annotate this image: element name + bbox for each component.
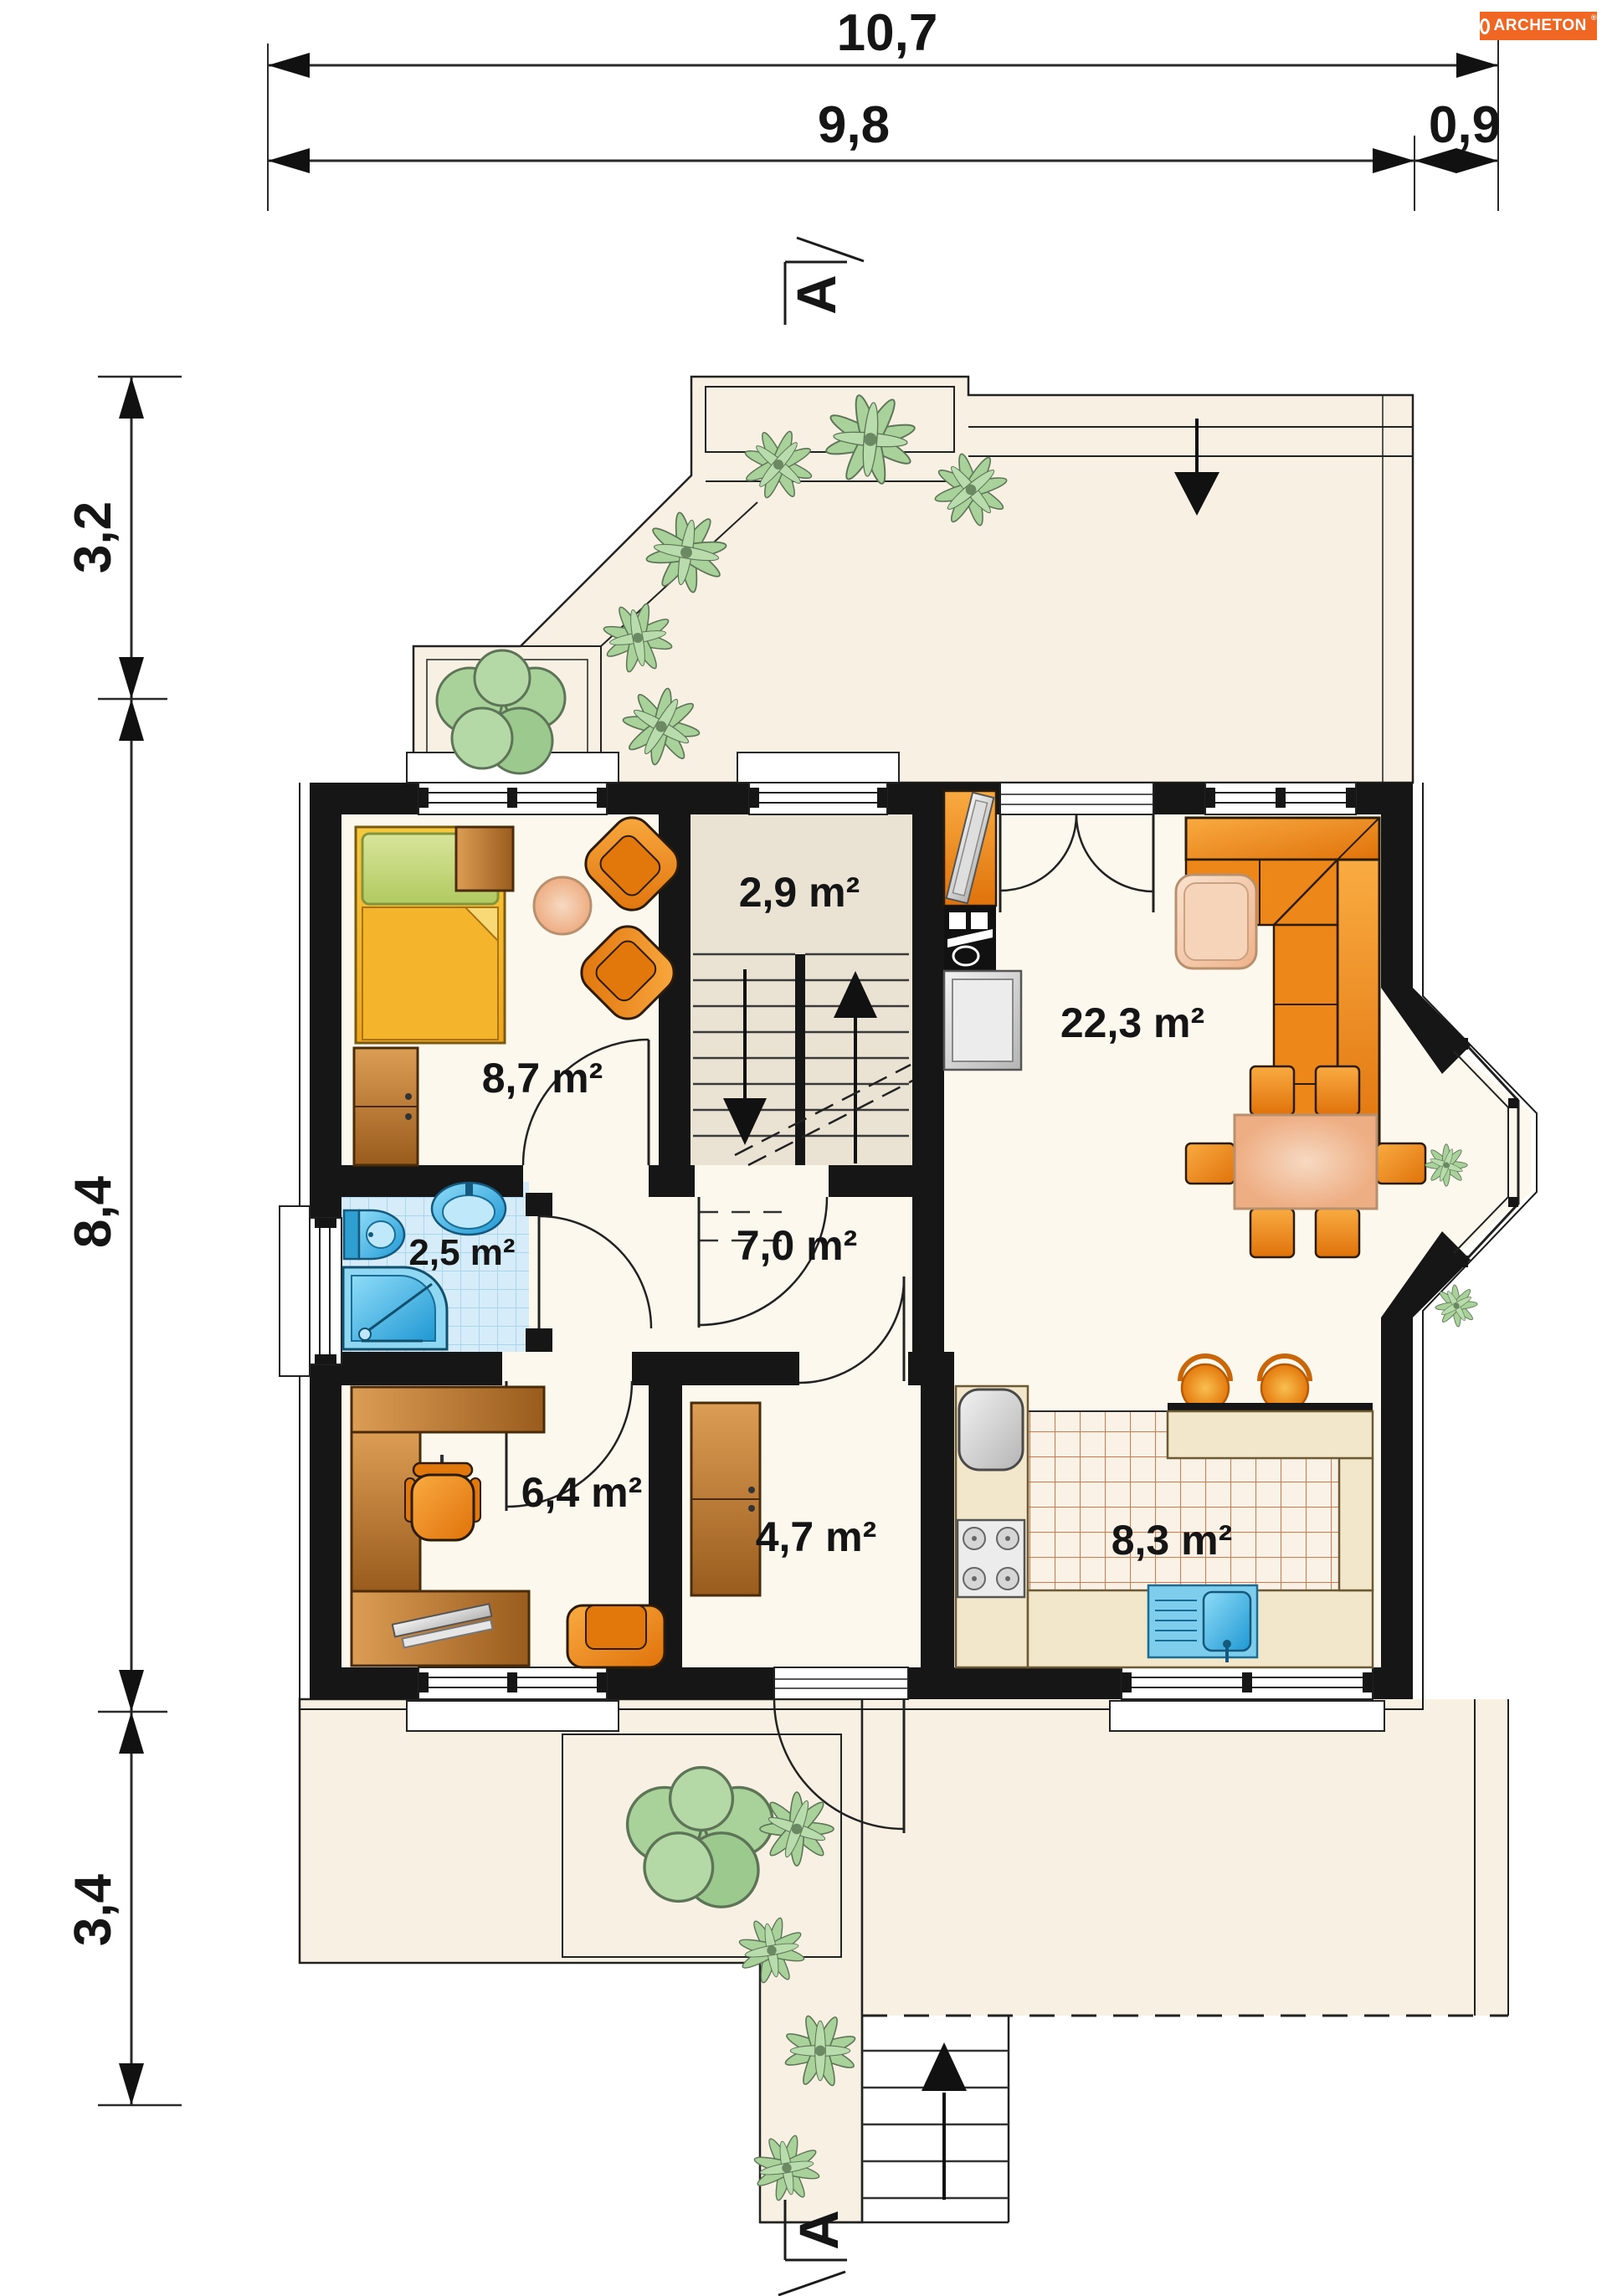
floor-plan-graphic	[0, 0, 1607, 2296]
fireplace	[944, 906, 996, 971]
section-marker-a-top: A	[787, 257, 845, 332]
section-marker-a-bottom: A	[789, 2192, 848, 2268]
armchair-u	[567, 1605, 665, 1667]
registered-mark: ®	[1591, 13, 1597, 22]
archeton-logo: ARCHETON ®	[1480, 12, 1597, 40]
stove	[958, 1520, 1024, 1597]
area-label-bathroom: 2,5 m²	[366, 1234, 558, 1272]
coffee-table	[1176, 875, 1256, 968]
area-label-study: 6,4 m²	[477, 1471, 686, 1514]
kitchen-sink	[1148, 1585, 1257, 1662]
dim-porch-depth: 3,4	[67, 1826, 121, 1994]
area-label-hall: 7,0 m²	[692, 1224, 901, 1267]
area-label-bedroom: 8,7 m²	[438, 1056, 647, 1100]
shelf	[456, 827, 513, 891]
counter-right	[1339, 1458, 1373, 1590]
fridge	[959, 1389, 1023, 1470]
area-label-kitchen: 8,3 m²	[1067, 1518, 1276, 1562]
archeton-logo-text: ARCHETON	[1494, 17, 1587, 35]
console-mirror	[944, 791, 996, 906]
window-kitchen-bottom	[1110, 1667, 1384, 1731]
office-chair	[405, 1455, 480, 1540]
counter-peninsula	[1168, 1411, 1373, 1458]
area-label-staircase: 2,9 m²	[695, 871, 904, 914]
sink	[432, 1183, 506, 1235]
up-arrow	[922, 2042, 967, 2200]
desk-bottom	[352, 1591, 529, 1666]
furniture-closet	[691, 1403, 760, 1595]
window-study-bottom	[407, 1667, 619, 1731]
area-label-living-room: 22,3 m²	[1015, 1001, 1250, 1045]
round-table	[534, 877, 591, 934]
upper-terrace	[413, 377, 1413, 783]
dim-house-depth: 8,4	[67, 1128, 121, 1296]
bed-blanket	[362, 907, 498, 1040]
window-bathroom-left	[280, 1206, 341, 1376]
shower	[343, 1267, 447, 1349]
dim-house-width: 9,8	[737, 99, 971, 152]
dim-total-width: 10,7	[770, 7, 1004, 60]
desk-top	[352, 1387, 544, 1432]
floor-plan-page: 10,7 9,8 0,9 3,2 8,4 3,4 A A 2,9 m² 8,7 …	[0, 0, 1607, 2296]
dim-bay-width: 0,9	[1348, 99, 1582, 152]
archeton-logo-icon	[1480, 18, 1490, 34]
dining-table	[1235, 1115, 1377, 1209]
window-stairs-top	[737, 752, 899, 814]
window-living-top	[1205, 783, 1356, 814]
area-label-closet: 4,7 m²	[711, 1515, 921, 1559]
appliance	[944, 971, 1021, 1070]
dim-terrace-depth: 3,2	[67, 454, 121, 621]
